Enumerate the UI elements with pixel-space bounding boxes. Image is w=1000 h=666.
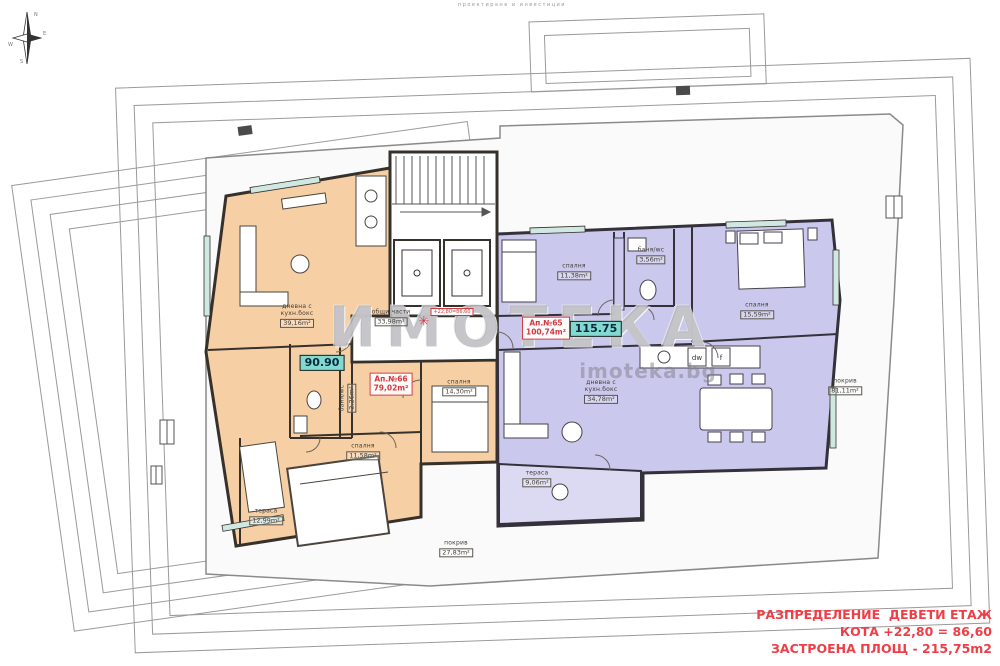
sofa [504,352,520,428]
compass-e: E [43,31,46,37]
compass-s: S [20,59,23,65]
sofa [504,424,548,438]
edge-marker-right [886,196,902,218]
kitchen-counter [356,176,386,246]
coffee-table [291,255,309,273]
room-label-terrace-65: тераса 9,06m² [522,470,551,487]
roof-label-right: покрив 81,11m² [828,378,862,395]
common-area-label: общи части 33,98m² [372,309,411,326]
elevation-star-icon: ✳ [419,315,430,330]
chair [730,432,743,442]
compass-w: W [8,42,13,48]
vent-symbol [238,125,253,136]
chair [752,374,765,384]
dining-table [700,388,772,430]
chair [708,432,721,442]
title-line-2: КОТА +22,80 = 86,60 [756,624,992,641]
room-label-living-66: дневна с кухн.бокс 39,16m² [274,304,320,328]
elevation-marker: +22,80=86,60 [430,308,473,316]
roof-label-bottom: покрив 27,83m² [439,540,473,557]
compass-rose: N E S W [8,12,46,65]
room-label-bedroom2-65: спалня 15,59m² [740,302,774,319]
apartment-65-price-badge: 115.75 [570,321,622,337]
title-line-1: РАЗПРЕДЕЛЕНИЕ ДЕВЕТИ ЕТАЖ [756,607,992,624]
room-label-bedroom1-66: спалня 14,30m² [442,379,476,396]
chair [752,432,765,442]
apartment-66-tag: Ап.№66 79,02m² [370,373,413,396]
kitchen-hob [365,216,377,228]
terrace-65-region [499,464,641,524]
vent-symbol [676,86,690,95]
room-label-bath-66: баня/wc 2,26m² [339,383,356,412]
room-label-living-65: дневна с кухн.бокс 34,78m² [578,380,624,404]
slab-outline-top [529,14,766,92]
title-line-3: ЗАСТРОЕНА ПЛОЩ - 215,75m2 [756,641,992,658]
sofa [240,226,256,292]
room-label-terrace-66: тераса 12,99m² [249,508,283,525]
kitchen-sink [365,190,377,202]
chair [730,374,743,384]
apartment-65-tag: Ап.№65 100,74m² [522,317,570,340]
compass-n: N [34,12,38,18]
room-label-bath-65: баня/wc 3,56m² [636,247,665,264]
nightstand [808,228,817,240]
armchair [562,422,582,442]
bed [287,456,389,546]
bath-sink [294,416,307,433]
title-block: РАЗПРЕДЕЛЕНИЕ ДЕВЕТИ ЕТАЖ КОТА +22,80 = … [756,607,992,658]
terrace-table [552,484,568,500]
room-label-bedroom1-65: спалня 11,38m² [557,263,591,280]
floor-plan-canvas: dw f N E S W проектиране и инвестиции [0,0,1000,666]
room-label-bedroom2-66: спалня 11,58m² [346,443,380,460]
edge-marker-left [151,420,174,484]
header-note: проектиране и инвестиции [458,2,566,8]
toilet [307,391,321,409]
apartment-66-price-badge: 90.90 [300,355,345,371]
nightstand [726,231,735,243]
